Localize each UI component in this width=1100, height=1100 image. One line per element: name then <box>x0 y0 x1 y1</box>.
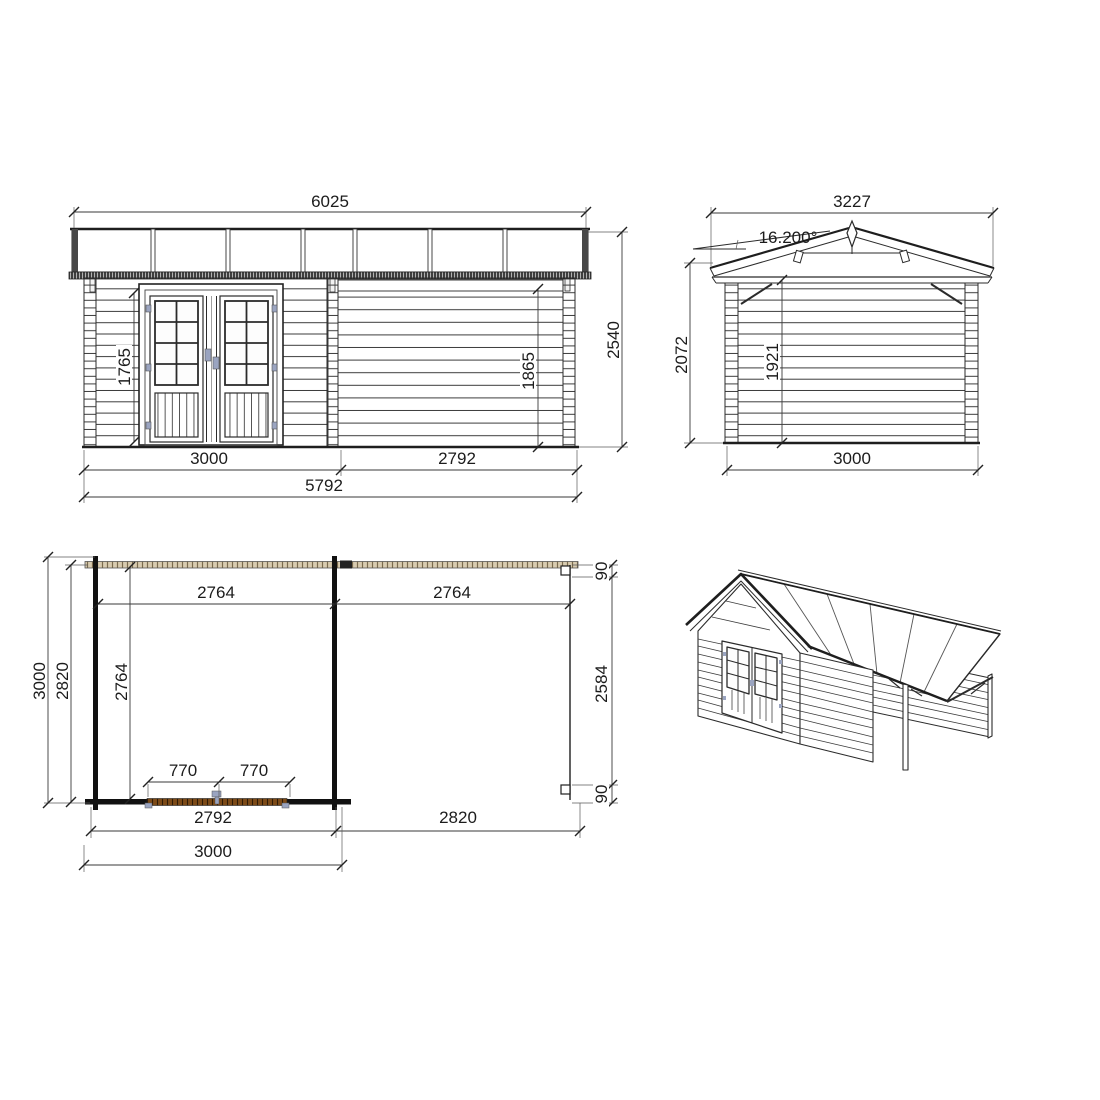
plan-door <box>145 791 289 808</box>
dim-plan-post-top: 90 <box>592 562 611 581</box>
plan-wall-left <box>93 556 98 810</box>
side-elevation-view: 3227 16.200° 2072 1921 3000 <box>672 192 998 476</box>
dim-side-wall-height: 1921 <box>763 343 782 381</box>
plan-roof-beam <box>85 562 578 569</box>
iso-view <box>686 570 1001 770</box>
door-lock <box>213 357 219 369</box>
dim-front-roof-width: 6025 <box>311 192 349 211</box>
dim-plan-post-bottom: 90 <box>592 785 611 804</box>
plan-post-bottom <box>561 785 570 794</box>
plan-post-top <box>561 566 570 575</box>
front-corner-right <box>563 278 575 447</box>
dim-plan-annex-width: 2820 <box>439 808 477 827</box>
door-window-left <box>155 301 198 385</box>
dim-front-total-width: 5792 <box>305 476 343 495</box>
plan-dimensions: 3000 2820 2764 2764 2764 90 2584 90 770 … <box>30 552 618 872</box>
front-elevation-view: 6025 2540 1765 1865 3000 2792 5792 <box>69 192 628 503</box>
iso-cabin-side <box>800 653 873 762</box>
dim-front-door-height: 1765 <box>115 348 134 386</box>
front-annex-beam <box>338 280 563 291</box>
dim-front-annex-width: 2792 <box>438 449 476 468</box>
plan-wall-partition <box>332 556 337 810</box>
side-corner-right <box>965 283 978 443</box>
side-walls <box>723 283 980 443</box>
front-corner-left <box>84 278 96 447</box>
front-corner-mid <box>327 278 338 447</box>
dim-plan-cabin-width-inner: 2792 <box>194 808 232 827</box>
roof-finial <box>847 221 857 247</box>
dim-plan-cabin-span: 2764 <box>197 583 235 602</box>
iso-canopy-post-front <box>903 684 908 770</box>
dim-front-overall-height: 2540 <box>604 321 623 359</box>
dim-plan-door-leaf-left: 770 <box>169 761 197 780</box>
iso-canopy-post-rear <box>988 674 992 738</box>
door-handle <box>205 349 211 361</box>
dim-side-roof-width: 3227 <box>833 192 871 211</box>
floor-plan-view: 3000 2820 2764 2764 2764 90 2584 90 770 … <box>30 552 618 872</box>
dim-front-cabin-width: 3000 <box>190 449 228 468</box>
plan-door-lock <box>212 791 221 797</box>
dim-side-overall-height: 2072 <box>672 336 691 374</box>
dim-plan-cabin-width-outer: 3000 <box>194 842 232 861</box>
door-window-right <box>225 301 268 385</box>
door-slats-left <box>155 393 198 437</box>
side-corner-left <box>725 283 738 443</box>
door-slats-right <box>225 393 268 437</box>
dim-side-base-width: 3000 <box>833 449 871 468</box>
dim-front-eave-height: 1865 <box>519 352 538 390</box>
dim-plan-depth-wall: 2820 <box>53 662 72 700</box>
plan-beam-block <box>340 561 352 569</box>
dim-plan-depth-inner: 2764 <box>112 663 131 701</box>
dim-plan-annex-span: 2764 <box>433 583 471 602</box>
dim-roof-pitch: 16.200° <box>759 228 818 247</box>
dim-plan-annex-depth-inner: 2584 <box>592 665 611 703</box>
dim-plan-depth-overall: 3000 <box>30 662 49 700</box>
dim-plan-door-leaf-right: 770 <box>240 761 268 780</box>
front-double-door <box>139 284 283 445</box>
drawing-page: 6025 2540 1765 1865 3000 2792 5792 <box>0 0 1100 1100</box>
side-roof <box>710 221 994 283</box>
drawing-svg: 6025 2540 1765 1865 3000 2792 5792 <box>0 0 1100 1100</box>
